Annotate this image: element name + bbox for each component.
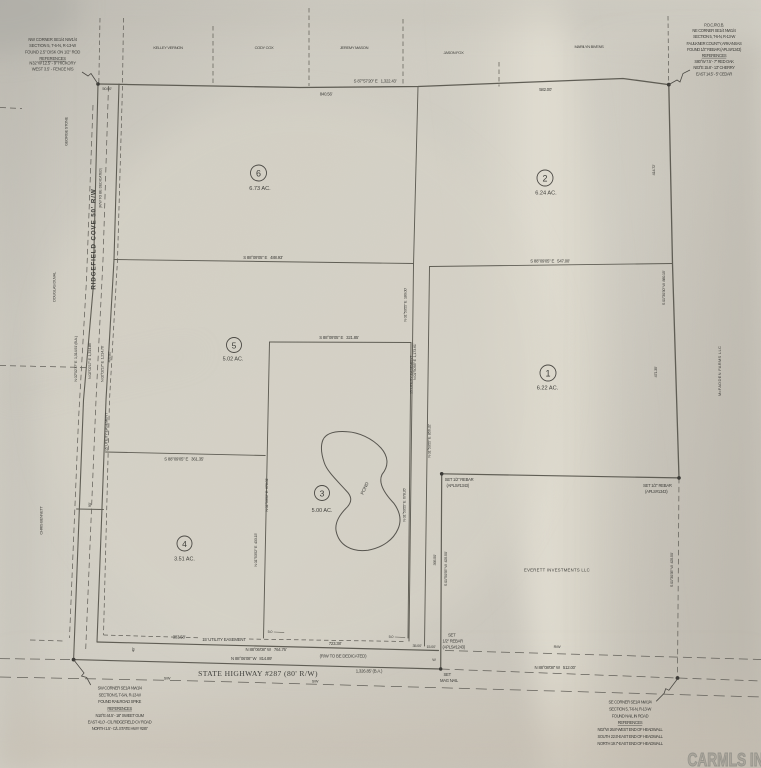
svg-text:S 01°30'35" W 425.50': S 01°30'35" W 425.50' <box>669 552 674 587</box>
svg-text:50.00': 50.00' <box>102 86 112 91</box>
svg-text:NORTH 1.5' - C/L STATE HWY #28: NORTH 1.5' - C/L STATE HWY #287 <box>92 726 149 731</box>
svg-text:2: 2 <box>542 174 547 184</box>
svg-text:5: 5 <box>232 341 237 351</box>
svg-text:S 88°09'05" E 321.85': S 88°09'05" E 321.85' <box>319 335 359 340</box>
svg-text:395.50': 395.50' <box>432 554 437 566</box>
svg-text:5.0: 5.0 <box>389 635 394 639</box>
svg-text:5.0: 5.0 <box>268 630 273 634</box>
svg-text:FOUND 1/2" REBAR (APLS#1343): FOUND 1/2" REBAR (APLS#1343) <box>687 47 742 52</box>
svg-text:CODY COX: CODY COX <box>255 45 274 50</box>
svg-text:15' UTILITY EASEMENT: 15' UTILITY EASEMENT <box>202 637 246 642</box>
svg-text:N 88°08'08" W 512.00': N 88°08'08" W 512.00' <box>535 665 576 670</box>
svg-text:S 88°09'05" E 488.93': S 88°09'05" E 488.93' <box>243 255 283 260</box>
svg-text:N 02°02'17" E 1,314.91' (B.A.: N 02°02'17" E 1,314.91' (B.A.) <box>73 335 78 381</box>
svg-text:EAST 41.0' - C/L RIDGEFIELD CV: EAST 41.0' - C/L RIDGEFIELD CV ROAD <box>88 720 152 725</box>
svg-text:R/W: R/W <box>554 645 561 649</box>
svg-text:414.72': 414.72' <box>651 164 656 176</box>
svg-text:S/W: S/W <box>312 680 319 684</box>
svg-text:SET 1/2" REBAR: SET 1/2" REBAR <box>643 483 672 488</box>
svg-text:6.73 AC.: 6.73 AC. <box>249 186 271 192</box>
svg-text:N 02°02'17" E 1,314.85': N 02°02'17" E 1,314.85' <box>87 342 92 379</box>
svg-text:(APLS#1243): (APLS#1243) <box>443 645 466 650</box>
svg-text:S 01°50'55" W 425.50': S 01°50'55" W 425.50' <box>443 551 448 586</box>
svg-text:GEORGE STONE: GEORGE STONE <box>64 116 69 145</box>
svg-text:MAG NAIL: MAG NAIL <box>440 678 459 683</box>
svg-text:15.00': 15.00' <box>426 645 436 649</box>
svg-text:JASON FOX: JASON FOX <box>444 50 465 55</box>
svg-text:N 02°02'17" E 1,214.76': N 02°02'17" E 1,214.76' <box>100 345 105 382</box>
svg-text:3.51 AC.: 3.51 AC. <box>174 557 195 563</box>
svg-text:SECTION 5, T-6-N, R-13-W: SECTION 5, T-6-N, R-13-W <box>99 692 142 697</box>
svg-text:N02°W 26.8'-WEST END OF HEADWA: N02°W 26.8'-WEST END OF HEADWALL <box>598 727 664 732</box>
svg-text:(R/W TO BE DEDICATED): (R/W TO BE DEDICATED) <box>320 654 367 659</box>
svg-text:6.22 AC.: 6.22 AC. <box>537 386 559 392</box>
svg-text:3: 3 <box>320 489 325 499</box>
svg-text:S 88°09'05" E 547.00': S 88°09'05" E 547.00' <box>530 259 570 264</box>
svg-text:CHRIS BENNETT: CHRIS BENNETT <box>39 505 44 534</box>
svg-text:35.00': 35.00' <box>412 644 422 648</box>
svg-text:NE CORNER SE1/4 NW1/4: NE CORNER SE1/4 NW1/4 <box>692 28 736 33</box>
svg-text:723.38': 723.38' <box>329 641 342 646</box>
svg-text:SOUTH 22.5'-EAST END OF HEADWA: SOUTH 22.5'-EAST END OF HEADWALL <box>597 734 663 739</box>
svg-text:SECTION 5, T-6-N, R-13-W: SECTION 5, T-6-N, R-13-W <box>609 707 652 712</box>
svg-text:SE CORNER SE1/4 NW1/4: SE CORNER SE1/4 NW1/4 <box>609 700 653 705</box>
svg-text:N 01°50'55" E 180.00': N 01°50'55" E 180.00' <box>403 288 408 322</box>
svg-text:S 87°57'20" E 1,322.43': S 87°57'20" E 1,322.43' <box>354 79 397 84</box>
svg-text:DOUGLAS DUVAL: DOUGLAS DUVAL <box>52 271 57 302</box>
svg-text:SW CORNER SE1/4 NW1/4: SW CORNER SE1/4 NW1/4 <box>98 685 143 690</box>
svg-text:SECTION 5, T-6-N, R-13-W: SECTION 5, T-6-N, R-13-W <box>29 43 76 48</box>
svg-text:4: 4 <box>182 539 187 549</box>
svg-text:1/2" REBAR: 1/2" REBAR <box>443 639 464 644</box>
svg-text:REFERENCES: REFERENCES <box>618 720 643 725</box>
svg-text:383.58': 383.58' <box>173 635 186 640</box>
svg-text:6: 6 <box>256 169 261 179</box>
svg-text:N03°E 15.8' - 13" CHERRY: N03°E 15.8' - 13" CHERRY <box>693 65 735 70</box>
svg-text:STATE HIGHWAY #287 (80' R/W): STATE HIGHWAY #287 (80' R/W) <box>198 669 318 678</box>
svg-text:CARMLS INC: CARMLS INC <box>688 750 761 768</box>
svg-text:FAULKNER COUNTY, ARKANSAS: FAULKNER COUNTY, ARKANSAS <box>686 41 742 46</box>
svg-text:SECTION 5, T-6-N, R-13-W: SECTION 5, T-6-N, R-13-W <box>693 34 736 39</box>
svg-text:JEREMY MASON: JEREMY MASON <box>340 45 369 50</box>
svg-text:471.35': 471.35' <box>653 366 658 378</box>
svg-text:40': 40' <box>131 647 136 652</box>
svg-text:N10°E 44.5' - 18" SWEET GUM: N10°E 44.5' - 18" SWEET GUM <box>95 713 144 718</box>
svg-text:RIDGEFIELD COVE 50' R/W: RIDGEFIELD COVE 50' R/W <box>91 188 98 289</box>
svg-text:FOUND NAIL IN ROAD: FOUND NAIL IN ROAD <box>612 714 649 719</box>
svg-text:FOUND 2.5" DISK ON 1/2" ROD: FOUND 2.5" DISK ON 1/2" ROD <box>25 49 80 54</box>
svg-text:MARILYN BIVENS: MARILYN BIVENS <box>574 44 604 49</box>
svg-text:EVERETT INVESTMENTS LLC: EVERETT INVESTMENTS LLC <box>524 568 590 573</box>
svg-text:SET 1/2" REBAR: SET 1/2" REBAR <box>445 477 474 482</box>
svg-text:90': 90' <box>87 502 92 507</box>
svg-text:N 01°50'55" E 856.32': N 01°50'55" E 856.32' <box>427 424 432 458</box>
svg-text:433.82': 433.82' <box>107 351 112 363</box>
svg-text:N 01°53'52" E 678.01': N 01°53'52" E 678.01' <box>264 478 269 512</box>
svg-text:(APLS#1343): (APLS#1343) <box>645 489 668 494</box>
svg-text:SET: SET <box>444 672 452 677</box>
svg-text:McFADDEN FARMS LLC: McFADDEN FARMS LLC <box>717 346 722 396</box>
svg-text:5.02 AC.: 5.02 AC. <box>223 357 244 363</box>
svg-text:(R/W TO BE DEDICATED): (R/W TO BE DEDICATED) <box>99 168 103 208</box>
svg-text:1,326.85' (B.A.): 1,326.85' (B.A.) <box>356 669 383 674</box>
svg-text:6.24 AC.: 6.24 AC. <box>535 191 557 197</box>
svg-text:SET: SET <box>448 633 456 638</box>
svg-text:S80°W 7.5' - 7" RED OAK: S80°W 7.5' - 7" RED OAK <box>694 59 734 64</box>
svg-text:5.00 AC.: 5.00 AC. <box>312 508 333 514</box>
svg-text:N 01°50'55" E 678.26': N 01°50'55" E 678.26' <box>402 488 407 522</box>
svg-text:582.00': 582.00' <box>539 87 552 92</box>
svg-text:1: 1 <box>545 369 550 379</box>
svg-text:WEST 3.5' - FENCE N/S: WEST 3.5' - FENCE N/S <box>32 67 74 72</box>
svg-text:NORTH 19.7'-EAST END OF HEADWA: NORTH 19.7'-EAST END OF HEADWALL <box>597 741 663 746</box>
svg-text:FOUND RAILROAD SPIKE: FOUND RAILROAD SPIKE <box>98 699 141 704</box>
svg-text:KELLEY VERNON: KELLEY VERNON <box>153 45 183 50</box>
svg-text:N 01°53'52" E 433.15': N 01°53'52" E 433.15' <box>253 533 258 567</box>
svg-text:EAST 14.5' - 5" CEDAR: EAST 14.5' - 5" CEDAR <box>696 72 732 77</box>
svg-text:840.56': 840.56' <box>320 92 333 97</box>
svg-text:N 88°06'08" W 814.89': N 88°06'08" W 814.89' <box>231 656 272 661</box>
svg-text:(APLS#1343): (APLS#1343) <box>447 483 470 488</box>
svg-text:REFERENCES: REFERENCES <box>702 53 727 58</box>
svg-text:15' UTILITY EASEMENT: 15' UTILITY EASEMENT <box>104 412 109 451</box>
svg-text:NW CORNER SE1/4 NW1/4: NW CORNER SE1/4 NW1/4 <box>28 37 77 42</box>
svg-text:S 01°30'30" W 880.15': S 01°30'30" W 880.15' <box>661 270 666 305</box>
svg-text:N32°W 12.5' - 9" HICKORY: N32°W 12.5' - 9" HICKORY <box>29 61 76 66</box>
svg-text:S/W: S/W <box>164 677 171 681</box>
svg-text:N 88°06'08" W 764.76': N 88°06'08" W 764.76' <box>246 647 287 652</box>
svg-text:15' UTILITY EASEMENT: 15' UTILITY EASEMENT <box>409 355 414 394</box>
svg-text:S 88°09'05" E 361.35': S 88°09'05" E 361.35' <box>164 457 204 462</box>
svg-text:REFERENCES: REFERENCES <box>107 706 132 711</box>
svg-text:P.O.C./P.O.B.: P.O.C./P.O.B. <box>704 23 724 28</box>
